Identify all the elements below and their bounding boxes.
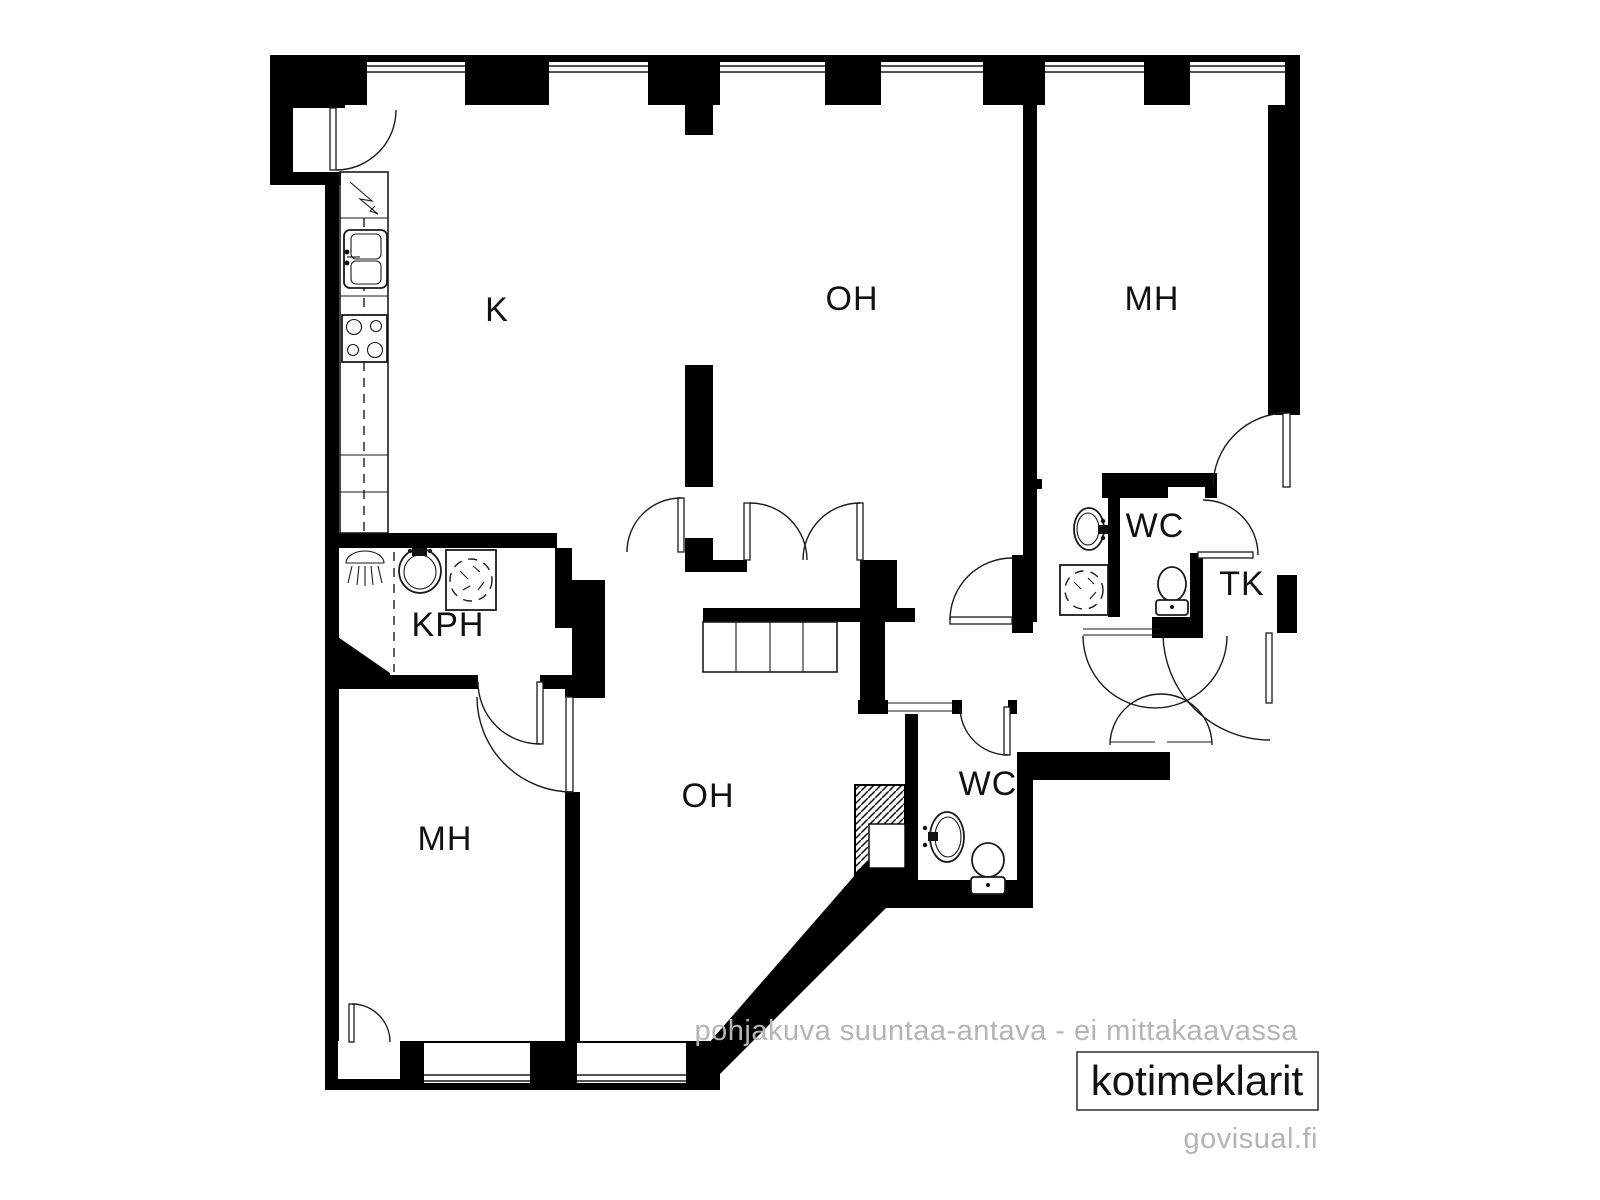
door-swing-arc: [330, 108, 396, 170]
kitchen-counter: [340, 172, 388, 533]
washing-machine-icon: [1060, 565, 1108, 615]
washbasin-icon: [923, 812, 964, 862]
door-swing-arc: [477, 697, 573, 792]
room-label-kitchen: K: [485, 291, 509, 329]
window: [549, 62, 648, 105]
room-label-vestibule: TK: [1219, 565, 1264, 603]
door-swing-arc: [478, 682, 543, 744]
brand-logo-text: kotimeklarit: [1091, 1057, 1304, 1104]
room-label-living-top: OH: [826, 280, 879, 318]
window: [577, 1043, 686, 1083]
door-swing-arc: [950, 558, 1012, 624]
wardrobe-closet: [703, 622, 837, 672]
double-door-arcs: [744, 503, 863, 560]
door-swing-arc: [960, 707, 1010, 755]
window: [1045, 62, 1144, 105]
window: [720, 62, 825, 105]
room-label-living-bottom: OH: [682, 777, 735, 815]
door-swing-arc: [349, 1004, 390, 1042]
washbasin-icon: [1074, 508, 1108, 550]
window: [1190, 62, 1285, 105]
door-recess: [338, 1041, 400, 1079]
window: [424, 1043, 530, 1083]
electrical-panel-icon: [350, 182, 378, 214]
door-swing-arc: [1213, 413, 1290, 487]
kitchen-double-sink-icon: [344, 230, 387, 288]
entry-door-arcs: [1083, 629, 1272, 745]
door-swing-arc: [627, 498, 684, 552]
duct-shaft-hatch: [855, 785, 905, 880]
toilet-icon: [971, 843, 1005, 894]
footer: pohjakuva suuntaa-antava - ei mittakaava…: [695, 1015, 1318, 1155]
room-label-wc-top: WC: [1126, 507, 1185, 545]
doorway-frame: [888, 700, 952, 714]
floor-plan-drawing: K OH MH KPH WC TK MH OH WC pohjakuva suu…: [0, 0, 1600, 1200]
window: [881, 62, 983, 105]
room-label-bedroom-bottom: MH: [418, 820, 473, 858]
shower-icon: [346, 551, 384, 586]
floor-plan-page: K OH MH KPH WC TK MH OH WC pohjakuva suu…: [0, 0, 1600, 1200]
door-swing-arc: [1198, 500, 1258, 558]
room-label-wc-bottom: WC: [959, 765, 1018, 803]
disclaimer-text: pohjakuva suuntaa-antava - ei mittakaava…: [695, 1015, 1299, 1047]
stove-icon: [342, 315, 387, 362]
washbasin-icon: [399, 548, 441, 593]
room-label-bedroom-top: MH: [1125, 280, 1180, 318]
room-label-bathroom: KPH: [412, 606, 485, 644]
washing-machine-icon: [446, 550, 496, 610]
toilet-icon: [1156, 567, 1188, 615]
website-text: govisual.fi: [1184, 1123, 1318, 1155]
window: [367, 62, 465, 105]
